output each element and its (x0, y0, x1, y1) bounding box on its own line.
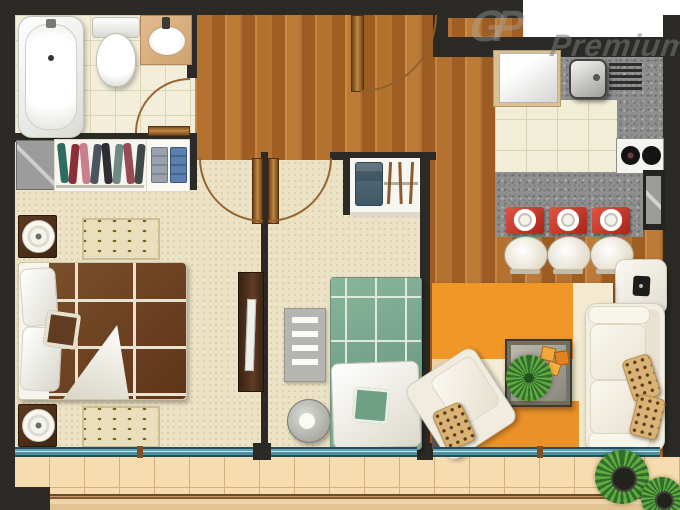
balcony-railing (0, 494, 680, 510)
desk (238, 272, 264, 392)
wall-balcony-corner-block (0, 487, 50, 510)
dotted-rug-top (82, 218, 160, 260)
bathtub (18, 16, 84, 138)
balcony-window (433, 447, 537, 457)
balcony-window (271, 447, 417, 457)
toilet-bowl (96, 33, 136, 87)
bar-stool-base (510, 269, 540, 274)
desk-item (245, 299, 257, 371)
plate (557, 209, 579, 231)
tall-appliance (643, 170, 665, 230)
watermark-label: Premium (547, 28, 680, 64)
floor-plan: GP Premium (0, 0, 680, 510)
cushion-brown (43, 310, 82, 350)
closet-rail (56, 185, 144, 188)
balcony-floor (15, 457, 680, 494)
second-bed (330, 277, 422, 450)
plate (514, 209, 536, 231)
striped-rug (284, 308, 326, 382)
tall-appliance-front (646, 176, 661, 224)
toilet (92, 17, 138, 87)
window-mullion (537, 446, 543, 458)
cooktop (616, 138, 664, 174)
hanging-garment (90, 144, 102, 185)
placemat (506, 207, 544, 234)
bar-stool-base (553, 269, 583, 274)
tv-screen (632, 276, 650, 297)
balcony-plant-small (641, 477, 680, 510)
drainboard (609, 63, 642, 93)
watermark-logo: GP (466, 2, 517, 52)
cushion-green (352, 386, 391, 424)
placemat (592, 207, 630, 234)
table-plant-center (524, 373, 534, 383)
wall-closet2-left (343, 152, 350, 215)
round-stool (287, 399, 331, 443)
master-bed (18, 262, 187, 400)
bathtub-basin (25, 24, 77, 130)
lamp-bottom (22, 409, 55, 442)
closet-rail-strip (54, 139, 148, 192)
plant-pot (611, 466, 637, 492)
gray-cabinet (16, 140, 55, 190)
window-mullion (137, 446, 143, 458)
hanging-garment (134, 144, 145, 185)
balcony-window (15, 447, 137, 457)
tv-screen-dot (639, 284, 643, 288)
bathtub-faucet-icon (46, 19, 56, 28)
sink-faucet-dot (593, 74, 600, 81)
burner-right (642, 146, 661, 165)
wall-east (663, 15, 680, 457)
folded-stack-blue (170, 147, 187, 183)
striped-rug-stripes (292, 317, 318, 373)
table-plant (506, 355, 552, 401)
folded-clothes-shelf (146, 139, 190, 192)
hanging-garment (101, 143, 113, 185)
kitchen-sink (569, 59, 607, 99)
hanging-garment (112, 144, 123, 185)
dotted-rug-bottom (82, 406, 160, 448)
closet2-interior (350, 158, 420, 217)
sofa-armrest-top (588, 306, 650, 324)
folded-jeans (355, 162, 383, 206)
balcony-window (143, 447, 253, 457)
plant-pot (655, 491, 674, 510)
placemat (549, 207, 587, 234)
round-stool-center (299, 413, 315, 429)
wall-balcony-post-1 (253, 443, 271, 460)
hanging-garment (57, 143, 69, 184)
folded-stack-gray (151, 147, 168, 183)
sink-faucet-icon (162, 17, 170, 29)
sink-vanity (140, 15, 192, 65)
bathtub-drain (48, 55, 54, 61)
hanging-garment (123, 143, 135, 185)
balcony-window (543, 447, 660, 457)
plate (600, 209, 622, 231)
sink-basin (148, 26, 186, 56)
wall-west (0, 0, 15, 494)
hanging-garment (79, 143, 91, 185)
hanging-garment (68, 144, 79, 185)
burner-left (621, 146, 640, 165)
lamp-top (22, 220, 55, 253)
